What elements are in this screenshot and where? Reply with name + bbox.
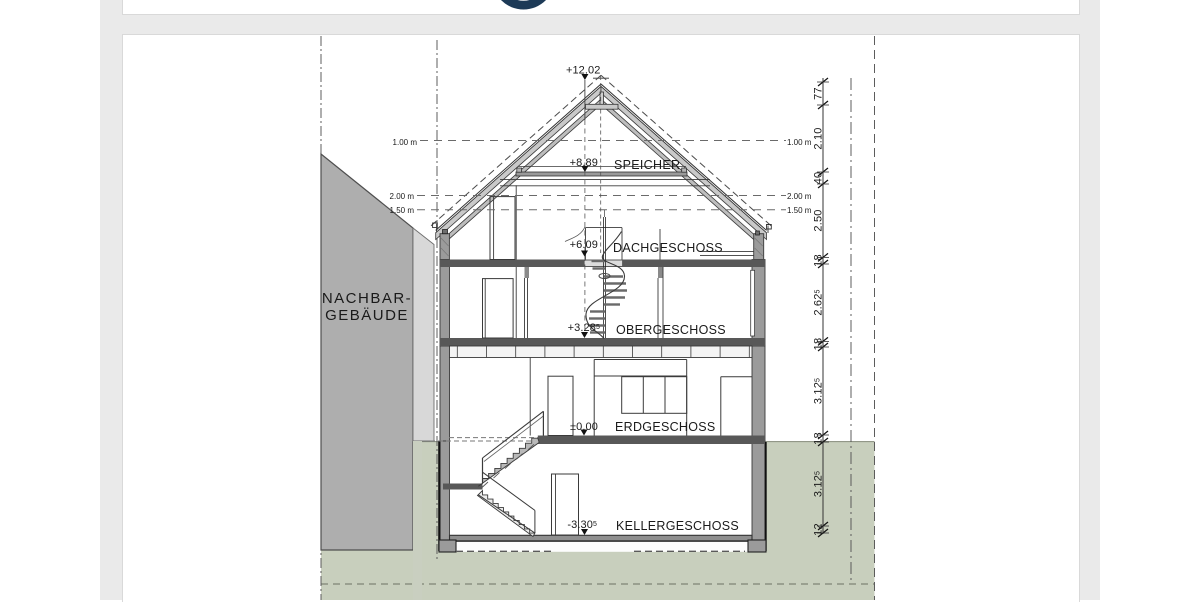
svg-text:NACHBAR-: NACHBAR-	[322, 290, 412, 307]
svg-text:2.50: 2.50	[813, 209, 825, 231]
svg-text:ERDGESCHOSS: ERDGESCHOSS	[615, 420, 716, 434]
svg-text:77: 77	[813, 87, 825, 100]
svg-text:18: 18	[813, 338, 825, 351]
svg-text:18: 18	[813, 254, 825, 267]
svg-text:GEBÄUDE: GEBÄUDE	[325, 307, 409, 324]
svg-text:2.10: 2.10	[813, 127, 825, 149]
svg-text:1.50 m: 1.50 m	[787, 206, 812, 215]
svg-text:2.00 m: 2.00 m	[390, 192, 415, 201]
svg-text:OBERGESCHOSS: OBERGESCHOSS	[616, 323, 726, 337]
svg-text:+6.09: +6.09	[570, 239, 598, 251]
svg-text:1.50 m: 1.50 m	[390, 206, 415, 215]
svg-text:DACHGESCHOSS: DACHGESCHOSS	[613, 241, 723, 255]
svg-text:1.00 m: 1.00 m	[393, 138, 418, 147]
svg-text:KELLERGESCHOSS: KELLERGESCHOSS	[616, 519, 739, 533]
svg-text:SPEICHER: SPEICHER	[614, 158, 680, 172]
svg-text:12: 12	[813, 523, 825, 536]
svg-text:18: 18	[813, 432, 825, 445]
svg-text:2.00 m: 2.00 m	[787, 192, 812, 201]
svg-text:40: 40	[813, 172, 825, 185]
svg-text:1.00 m: 1.00 m	[787, 138, 812, 147]
